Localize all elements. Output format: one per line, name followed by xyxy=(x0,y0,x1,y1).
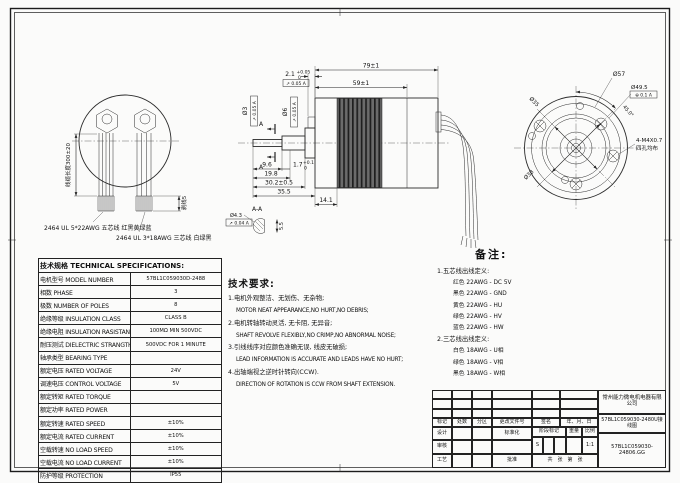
holes-note-line2: 四孔均布 xyxy=(636,144,659,152)
label-check: 审核 xyxy=(432,440,452,454)
dim-shaft-tip: 9.6 xyxy=(262,162,272,169)
label-mark: 标记 xyxy=(432,418,452,427)
label-weight: 重量 xyxy=(566,427,582,437)
table-row: 额定电流 RATED CURRENT±10% xyxy=(39,430,222,443)
front-view: Ø57 Ø49.5 ⊕ 0.1 A 45.0° 4-M4X0.7 四孔均布 Ø3… xyxy=(514,71,663,210)
table-row: 绝缘电阻 INSULATION RASISTANCE100MΩ MIN 500V… xyxy=(39,325,222,338)
title-block: 标记 处数 分区 更改文件号 签名 年、月、日 设计 标准化 审核 工艺 批准 … xyxy=(432,390,666,468)
tech-req-item-en: DIRECTION OF ROTATION IS CCW FROM SHAFT … xyxy=(228,379,440,392)
scale-value: 1:1 xyxy=(582,437,598,454)
remarks-title: 备注: xyxy=(475,246,587,262)
cable-gland-hex-2 xyxy=(135,109,156,133)
dim-shaft-d3: Ø3 xyxy=(242,107,249,116)
tech-req-item-en: MOTOR NEAT APPEARANCE,NO HURT,NO DEBRIS; xyxy=(228,305,440,318)
remarks-group2-title: 2.三芯线出线定义: xyxy=(437,334,587,346)
dim-355: 35.5 xyxy=(277,189,291,196)
label-sign: 签名 xyxy=(532,418,560,427)
stage-value: S xyxy=(532,437,543,454)
dim-198: 19.8 xyxy=(264,171,278,178)
company-name: 常州能力微电机电器有限公司 xyxy=(598,390,666,414)
rear-exit-wires xyxy=(436,112,478,248)
dim-overall-length: 79±1 xyxy=(363,63,380,70)
dim-d35: Ø35 xyxy=(528,95,541,108)
rear-view: 线缆长度300±20 剥线5 2464 UL 5*22AWG 五芯线 红黑黄绿蓝… xyxy=(44,95,211,242)
section-tol-frame: ↗ 0.04 A xyxy=(229,221,250,227)
dim-angle-45: 45.0° xyxy=(621,104,635,119)
dim-d495: Ø49.5 xyxy=(631,84,648,91)
dim-302: 30.2±0.5 xyxy=(265,180,293,187)
section-dia-label: Ø4.3 xyxy=(230,212,242,219)
front-step xyxy=(308,117,315,128)
label-date: 年、月、日 xyxy=(560,418,598,427)
section-aa-detail: A-A Ø4.3 ↗ 0.04 A 5.5 xyxy=(226,206,285,234)
section-aa-label: A-A xyxy=(252,206,263,213)
dim-step: 2.1 xyxy=(285,71,295,78)
table-row: 极数 NUMBER OF POLES8 xyxy=(39,299,222,312)
holes-note-line1: 4-M4X0.7 xyxy=(636,138,663,144)
label-design: 设计 xyxy=(432,427,452,440)
table-row: 相数 PHASE3 xyxy=(39,286,222,299)
table-row: 额定转速 RATED SPEED±10% xyxy=(39,417,222,430)
cable-bundle-3wire xyxy=(136,133,152,211)
wire-definition: 黑色 22AWG - GND xyxy=(437,289,587,300)
dim-flat-sub: 0 xyxy=(304,166,307,172)
dim-body-length: 59±1 xyxy=(353,80,370,87)
dim-flat: 1.7 xyxy=(293,162,303,169)
label-zone: 分区 xyxy=(472,418,492,427)
label-scale: 比例 xyxy=(582,427,598,437)
label-doc-no: 更改文件号 xyxy=(492,418,532,427)
cable3-label: 2464 UL 3*18AWG 三芯线 白绿黑 xyxy=(116,234,211,242)
spec-table-title: 技术规格 TECHNICAL SPECIFICATIONS: xyxy=(39,259,222,273)
label-process: 工艺 xyxy=(432,454,452,468)
cable-gland-hex-1 xyxy=(97,109,118,133)
section-flat-dim: 5.5 xyxy=(279,222,285,230)
tolerance-frame-d6: ↗ 0.05 A xyxy=(292,101,298,122)
wire-definition: 白色 18AWG - U相 xyxy=(437,346,587,357)
tech-req-item-cn: 4.出轴端视之逆时针转向(CCW). xyxy=(228,367,440,379)
heatsink-fins xyxy=(338,99,382,188)
tech-req-item-cn: 3.引线线序对应颜色准确无误, 线皮无破损; xyxy=(228,342,440,354)
table-row: 额定功率 RATED POWER xyxy=(39,403,222,416)
wire-definition: 绿色 22AWG - HV xyxy=(437,312,587,323)
cable-bundle-5wire xyxy=(98,133,114,211)
side-view: 79±1 59±1 2.1 +0.05 0 ↗ 0.05 A Ø3 ↗ 0.05… xyxy=(226,63,478,249)
wire-definition: 蓝色 22AWG - HW xyxy=(437,323,587,334)
cable-length-dim: 线缆长度300±20 xyxy=(64,142,72,187)
table-row: 额定电压 RATED VOLTAGE24V xyxy=(39,364,222,377)
table-row: 轴承类型 BEARING TYPE xyxy=(39,351,222,364)
label-count: 处数 xyxy=(452,418,472,427)
tech-req-item-cn: 2.电机转轴转动灵活, 无卡阻, 无异音; xyxy=(228,318,440,330)
label-approve: 批准 xyxy=(492,454,532,468)
dim-flat-sup: +0.1 xyxy=(303,160,314,166)
tech-req-title: 技术要求: xyxy=(228,276,440,290)
table-row: 电机型号 MODEL NUMBER57BL1C059030D-2488 xyxy=(39,273,222,286)
label-standard: 标准化 xyxy=(492,427,532,440)
remarks-block: 备注: 1.五芯线出线定义: 红色 22AWG - DC 5V 黑色 22AWG… xyxy=(437,246,587,380)
table-row: 防护等级 PROTECTIONIP55 xyxy=(39,469,222,482)
table-row: 耐压测试 DIELECTRIC STRANGTH TEST500VDC FOR … xyxy=(39,338,222,351)
wire-definition: 绿色 18AWG - V相 xyxy=(437,358,587,369)
sheet-note: 共 张 第 张 xyxy=(532,454,598,468)
tech-req-item-en: SHAFT REVOLVE FLEXIBLY,NO CRIMP,NO ABNOR… xyxy=(228,330,440,343)
table-row: 额定转矩 RATED TORQUE xyxy=(39,390,222,403)
dim-step-sub: 0 xyxy=(298,75,301,81)
wire-definition: 黄色 22AWG - HU xyxy=(437,301,587,312)
wire-definition: 红色 22AWG - DC 5V xyxy=(437,278,587,289)
cable5-label: 2464 UL 5*22AWG 五芯线 红黑黄绿蓝 xyxy=(44,224,151,232)
dim-d38: Ø38 xyxy=(522,168,535,181)
dim-flange: 14.1 xyxy=(319,197,333,204)
spec-table: 技术规格 TECHNICAL SPECIFICATIONS: 电机型号 MODE… xyxy=(38,258,222,468)
table-row: 空载转速 NO LOAD SPEED±10% xyxy=(39,443,222,456)
dim-d57: Ø57 xyxy=(613,71,626,78)
engineering-drawing-sheet: { "views": { "rear": { "cable_length_lab… xyxy=(0,0,680,480)
technical-requirements: 技术要求: 1.电机外观整洁、无划伤、无杂物; MOTOR NEAT APPEA… xyxy=(228,276,440,391)
tech-req-item-en: LEAD INFORMATION IS ACCURATE AND LEADS H… xyxy=(228,354,440,367)
tech-req-item-cn: 1.电机外观整洁、无划伤、无杂物; xyxy=(228,293,440,305)
dim-shaft-d6: Ø6 xyxy=(282,108,289,117)
tolerance-frame-step: ↗ 0.05 A xyxy=(286,81,307,87)
strip-length-dim: 剥线5 xyxy=(180,195,188,210)
remarks-group1-title: 1.五芯线出线定义: xyxy=(437,266,587,278)
weight-value xyxy=(566,437,582,454)
wire-definition: 黑色 18AWG - W相 xyxy=(437,369,587,380)
table-row: 空载电流 NO LOAD CURRENT±10% xyxy=(39,456,222,469)
tolerance-frame-d3: ↗ 0.05 A xyxy=(252,100,258,121)
dim-step-sup: +0.05 xyxy=(297,70,311,76)
tolerance-frame-d495: ⊕ 0.1 A xyxy=(635,93,653,99)
part-number: 57BL1C059030-24806.GG xyxy=(598,433,666,468)
cut-mark-top: A xyxy=(259,121,264,128)
table-row: 绝缘等级 INSULATION CLASSCLASS B xyxy=(39,312,222,325)
label-stage-mark: 阶段标记 xyxy=(532,427,566,437)
drawing-name: 57BL1C059030-2480U接线图 xyxy=(598,414,666,433)
table-row: 调速电压 CONTROL VOLTAGE5V xyxy=(39,377,222,390)
